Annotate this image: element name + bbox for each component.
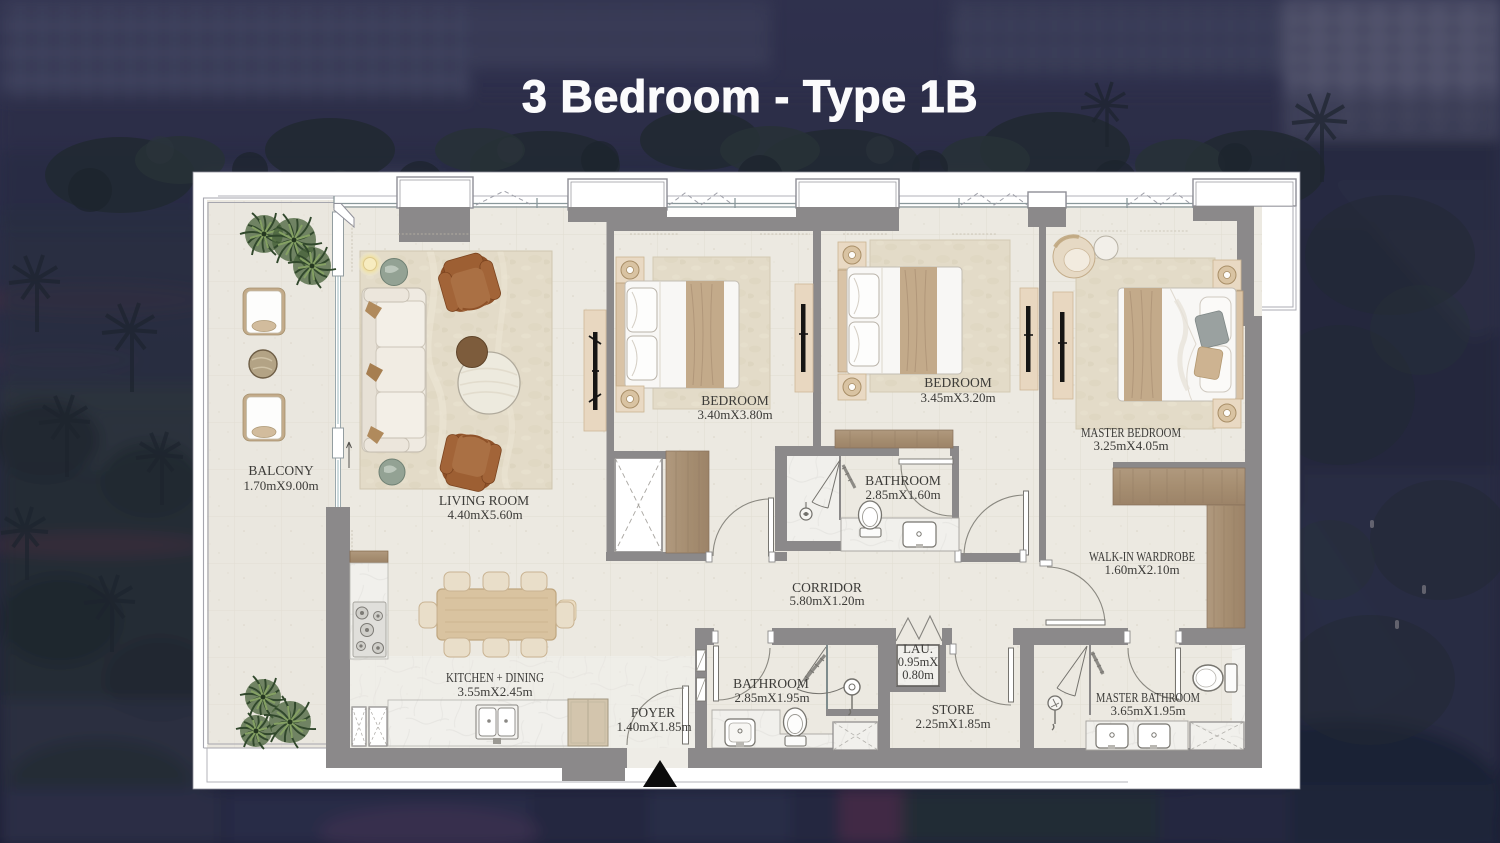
svg-text:3.65mX1.95m: 3.65mX1.95m xyxy=(1110,703,1185,718)
svg-text:BALCONY: BALCONY xyxy=(248,463,314,478)
svg-text:2.25mX1.85m: 2.25mX1.85m xyxy=(915,716,990,731)
svg-text:1.60mX2.10m: 1.60mX2.10m xyxy=(1104,562,1179,577)
svg-text:3.25mX4.05m: 3.25mX4.05m xyxy=(1093,438,1168,453)
svg-text:FOYER: FOYER xyxy=(631,705,675,720)
svg-text:LIVING ROOM: LIVING ROOM xyxy=(439,493,529,508)
svg-text:0.95mX: 0.95mX xyxy=(898,655,939,669)
svg-text:5.80mX1.20m: 5.80mX1.20m xyxy=(789,593,864,608)
svg-text:3.55mX2.45m: 3.55mX2.45m xyxy=(457,684,532,699)
svg-text:1.40mX1.85m: 1.40mX1.85m xyxy=(616,719,691,734)
svg-text:4.40mX5.60m: 4.40mX5.60m xyxy=(447,507,522,522)
svg-text:0.80m: 0.80m xyxy=(902,668,934,682)
svg-text:BATHROOM: BATHROOM xyxy=(733,676,809,691)
svg-text:1.70mX9.00m: 1.70mX9.00m xyxy=(243,478,318,493)
svg-text:KITCHEN + DINING: KITCHEN + DINING xyxy=(446,670,544,685)
svg-text:BEDROOM: BEDROOM xyxy=(701,393,769,408)
svg-text:2.85mX1.60m: 2.85mX1.60m xyxy=(865,487,940,502)
svg-text:LAU.: LAU. xyxy=(903,641,933,656)
svg-text:BEDROOM: BEDROOM xyxy=(924,375,992,390)
svg-text:STORE: STORE xyxy=(932,702,975,717)
svg-text:3.40mX3.80m: 3.40mX3.80m xyxy=(697,407,772,422)
svg-text:2.85mX1.95m: 2.85mX1.95m xyxy=(734,690,809,705)
svg-text:3.45mX3.20m: 3.45mX3.20m xyxy=(920,390,995,405)
svg-text:BATHROOM: BATHROOM xyxy=(865,473,941,488)
svg-text:3 Bedroom - Type 1B: 3 Bedroom - Type 1B xyxy=(522,71,978,122)
